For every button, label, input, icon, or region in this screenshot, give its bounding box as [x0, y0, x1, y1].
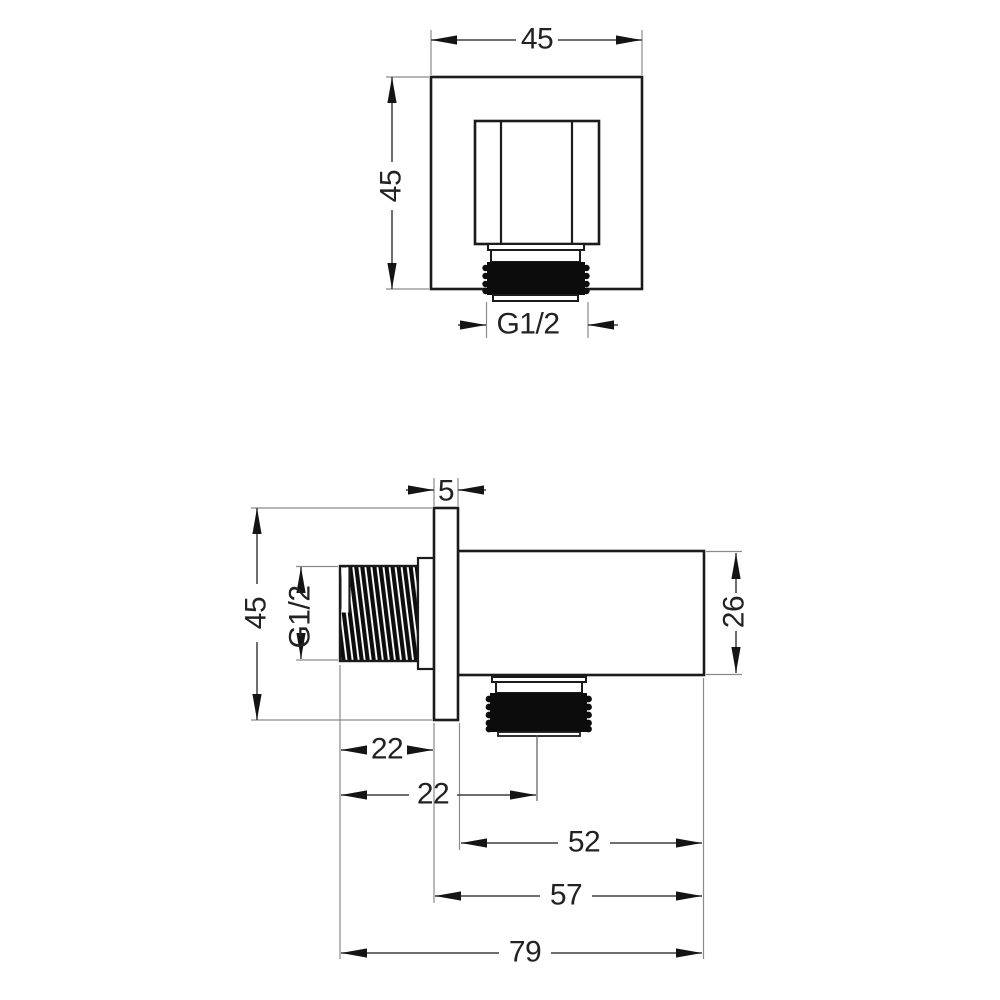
- arrowhead: [588, 320, 614, 329]
- dim-label-side-body-height: 26: [718, 596, 751, 628]
- dim-side-plate-thickness: 5: [406, 475, 486, 508]
- dim-label-side-plate-height: 45: [240, 597, 273, 629]
- outlet-thread: [486, 693, 592, 732]
- collar-side: [418, 558, 434, 669]
- dim-front-width: 45: [431, 23, 642, 76]
- dim-label-side-thread: G1/2: [284, 585, 317, 648]
- arrowhead: [616, 35, 642, 44]
- arrowhead: [252, 508, 261, 534]
- outlet-neck: [496, 682, 582, 693]
- arrowhead: [676, 948, 702, 957]
- arrowhead: [676, 891, 702, 900]
- dim-side-total-length: 79: [341, 936, 702, 969]
- hex-nut-front: [475, 121, 599, 244]
- arrowhead: [731, 647, 740, 673]
- wall-plate-side: [434, 508, 458, 720]
- arrowhead: [408, 485, 434, 494]
- thread-tip-front: [493, 295, 578, 301]
- arrowhead: [458, 485, 484, 494]
- arrowhead: [731, 553, 740, 579]
- body-side: [458, 551, 704, 675]
- dim-label-front-width: 45: [521, 23, 553, 56]
- dim-side-body-length: 52: [461, 826, 702, 859]
- arrowhead: [510, 790, 536, 799]
- arrowhead: [341, 745, 367, 754]
- dim-side-thread: G1/2: [284, 567, 339, 661]
- neck-step-2: [491, 250, 580, 262]
- dim-label-front-thread: G1/2: [496, 308, 559, 341]
- outlet-side: [486, 677, 592, 736]
- arrowhead: [461, 838, 487, 847]
- thread-chamfer: [342, 568, 350, 613]
- arrowhead: [341, 790, 367, 799]
- dim-label-side-thread-length: 22: [371, 733, 403, 766]
- arrowhead: [341, 948, 367, 957]
- arrowhead: [252, 694, 261, 720]
- dim-front-height: 45: [375, 77, 430, 289]
- dim-label-side-outlet-offset: 22: [417, 778, 449, 811]
- dim-label-side-depth: 57: [550, 879, 582, 912]
- front-view: 45 45 G1/2: [375, 23, 643, 341]
- arrowhead: [431, 35, 457, 44]
- arrowhead: [407, 745, 433, 754]
- arrowhead: [676, 838, 702, 847]
- arrowhead: [460, 320, 486, 329]
- dim-side-thread-length: 22: [341, 733, 433, 766]
- dim-side-body-height: 26: [706, 552, 751, 675]
- outlet-thread-tip: [498, 732, 580, 736]
- arrowhead: [387, 263, 396, 289]
- drawing-page: 45 45 G1/2: [0, 0, 1000, 1000]
- technical-drawing-canvas: 45 45 G1/2: [0, 0, 1000, 1000]
- dim-label-side-body-length: 52: [568, 826, 600, 859]
- arrowhead: [435, 891, 461, 900]
- dim-label-front-height: 45: [375, 170, 408, 202]
- dim-front-thread: G1/2: [458, 302, 618, 341]
- side-view: 5 45 G1/2: [240, 475, 751, 969]
- dim-label-side-total-length: 79: [509, 936, 541, 969]
- thread-front: [482, 262, 589, 295]
- arrowhead: [387, 77, 396, 103]
- dim-label-side-plate-thickness: 5: [438, 475, 454, 508]
- dim-side-depth: 57: [435, 879, 702, 912]
- dim-side-outlet-offset: 22: [341, 778, 536, 811]
- thread-side: [340, 566, 418, 661]
